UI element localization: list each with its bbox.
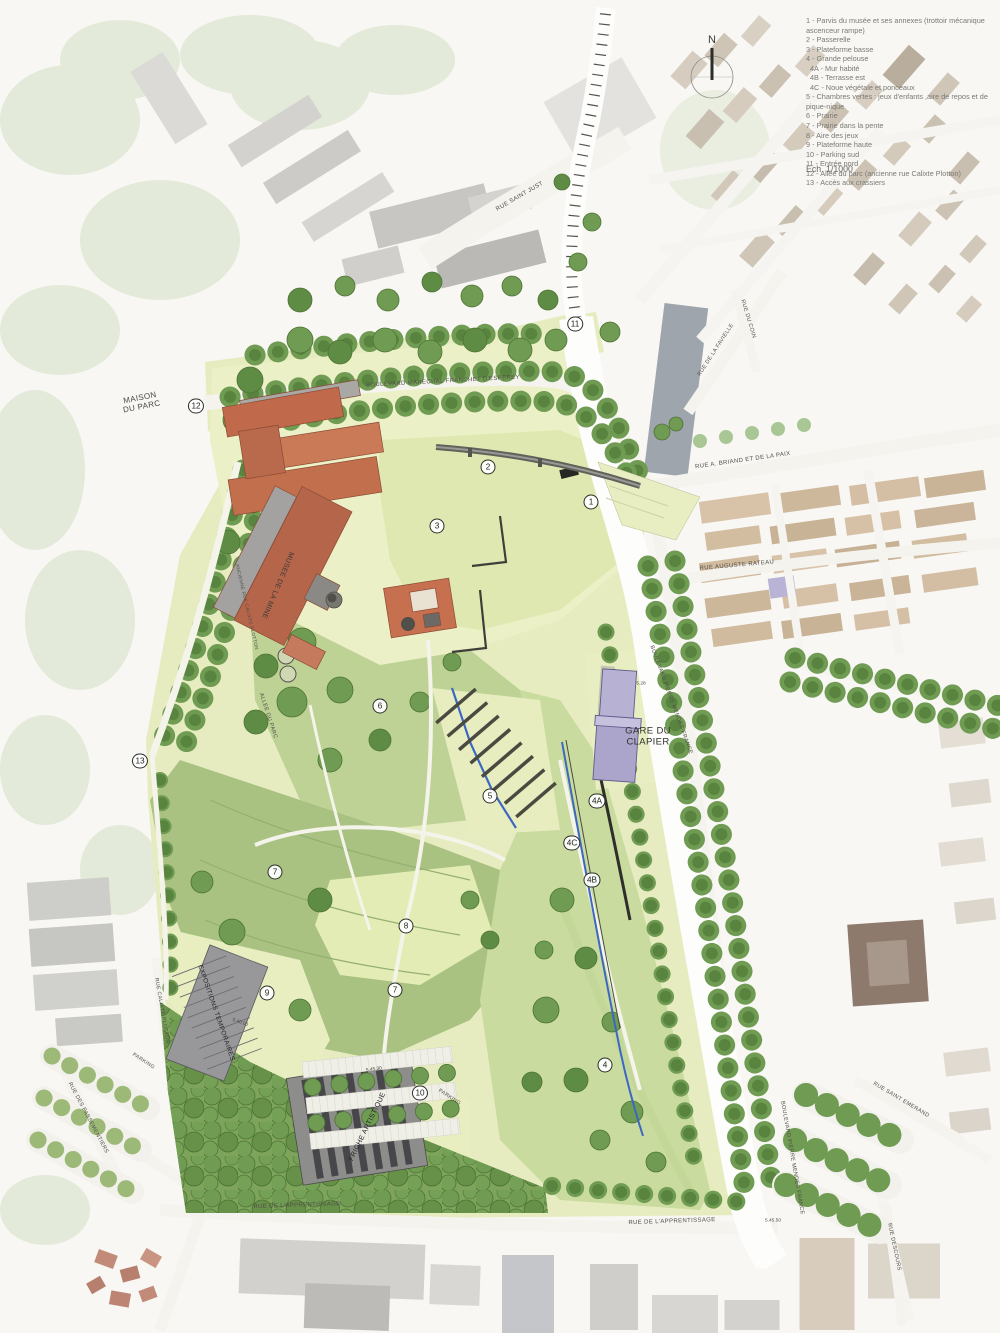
legend-item-3: 4 - Grande pelouse [806,54,998,64]
legend-item-10: 8 - Aire des jeux [806,131,998,141]
legend-item-9: 7 - Prairie dans la pente [806,121,998,131]
legend-item-6: 4C - Noue végétale et ponceaux [806,83,998,93]
legend-item-15: 13 - Accès aux crassiers [806,178,998,188]
site-plan-masterplan: RUE SAINT JUSTBOULEVARD MARECHAL FRANCHE… [0,0,1000,1333]
parking-sud-rows [302,1046,462,1149]
legend-item-7: 5 - Chambres vertes : jeux d'enfants ,ai… [806,92,998,111]
legend-item-5: 4B - Terrasse est [806,73,998,83]
legend-item-0: 1 - Parvis du musée et ses annexes (trot… [806,16,998,35]
legend-item-1: 2 - Passerelle [806,35,998,45]
friche-artistique-building [286,1059,427,1185]
legend: 1 - Parvis du musée et ses annexes (trot… [806,16,998,188]
legend-item-4: 4A - Mur habité [806,64,998,74]
legend-item-2: 3 - Plateforme basse [806,45,998,55]
legend-item-12: 10 - Parking sud [806,150,998,160]
station-building [593,666,641,783]
legend-item-11: 9 - Plateforme haute [806,140,998,150]
legend-item-8: 6 - Prairie [806,111,998,121]
scale-label: Ech. 1/1000 [806,164,853,174]
north-label: N [708,34,716,46]
site-plan-map [0,0,1000,1333]
